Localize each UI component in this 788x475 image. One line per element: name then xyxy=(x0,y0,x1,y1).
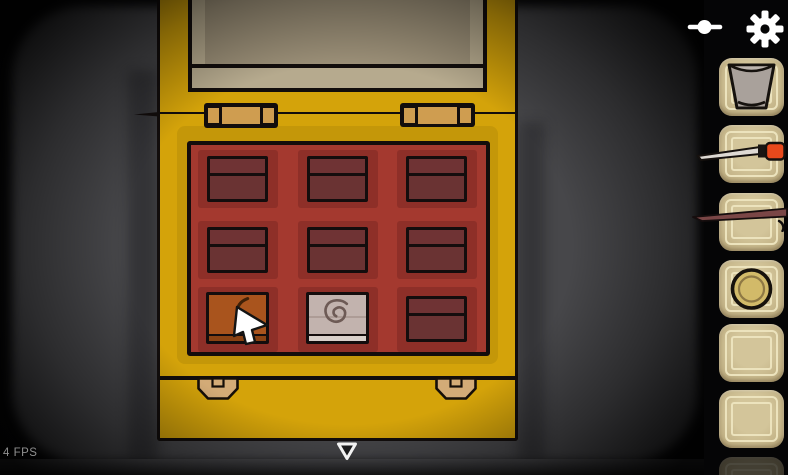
settings-gear-icon[interactable] xyxy=(746,10,784,48)
grid-cell-recess xyxy=(397,221,477,279)
paint-pan[interactable] xyxy=(406,227,467,273)
palette-knife-item[interactable] xyxy=(692,204,788,232)
grid-cell-recess xyxy=(298,150,378,208)
pan-half-line xyxy=(409,230,464,247)
box-shadow-right xyxy=(518,122,545,462)
hinge-left xyxy=(204,103,278,128)
grid-cell-recess xyxy=(397,287,477,352)
hinge-bar xyxy=(222,107,260,124)
inventory-bar xyxy=(704,0,788,475)
grid-cell-recess xyxy=(298,287,378,352)
paint-pan[interactable] xyxy=(406,296,467,342)
grid-cell-recess xyxy=(397,150,477,208)
inventory-slot-4[interactable] xyxy=(719,260,784,318)
inventory-slot-1[interactable] xyxy=(719,58,784,116)
pan-lip xyxy=(209,334,266,341)
inventory-slot-6[interactable] xyxy=(719,390,784,448)
pan-half-line xyxy=(310,230,365,247)
gold-cap-item[interactable] xyxy=(719,260,784,318)
lid-panel-line xyxy=(192,64,483,68)
paint-pan-being-painted[interactable] xyxy=(206,292,269,344)
inventory-slot-7[interactable] xyxy=(719,457,784,475)
water-bucket-item[interactable] xyxy=(719,58,784,116)
grid-cell-recess xyxy=(198,221,278,279)
paintbox-lid-panel xyxy=(188,0,487,92)
paint-pan[interactable] xyxy=(406,156,467,202)
pan-half-line xyxy=(210,230,265,247)
lid-panel-inner xyxy=(205,0,470,64)
paint-pan[interactable] xyxy=(307,227,368,273)
grid-cell-recess xyxy=(198,287,278,352)
hinge-right xyxy=(400,103,475,127)
paintbox-lid xyxy=(157,0,518,114)
paintbrush-red-item[interactable] xyxy=(696,141,788,167)
grid-cell-recess xyxy=(298,221,378,279)
clasp-left xyxy=(196,377,240,401)
hinge-cap xyxy=(208,108,219,123)
grid-cell-recess xyxy=(198,150,278,208)
box-shadow-left xyxy=(128,70,158,462)
pan-half-line xyxy=(409,299,464,316)
pan-half-line xyxy=(310,159,365,176)
hinge-cap xyxy=(404,108,415,123)
paint-pan-grid xyxy=(187,141,490,356)
clasp-right xyxy=(434,377,478,401)
pan-lip xyxy=(309,334,366,341)
inventory-slot-5[interactable] xyxy=(719,324,784,382)
pan-half-line xyxy=(210,159,265,176)
hinge-cap xyxy=(460,108,471,123)
paint-pan-spiral-painted[interactable] xyxy=(306,292,369,344)
fps-counter: 4 FPS xyxy=(3,447,37,459)
paint-pan[interactable] xyxy=(207,227,268,273)
paint-pan[interactable] xyxy=(307,156,368,202)
pin-icon[interactable] xyxy=(686,14,724,40)
game-screen: 4 FPS xyxy=(0,0,788,475)
pan-half-line xyxy=(409,159,464,176)
paint-pan[interactable] xyxy=(207,156,268,202)
hinge-cap xyxy=(263,108,274,123)
hinge-bar xyxy=(418,107,457,124)
nav-down-arrow-icon[interactable] xyxy=(335,441,359,462)
